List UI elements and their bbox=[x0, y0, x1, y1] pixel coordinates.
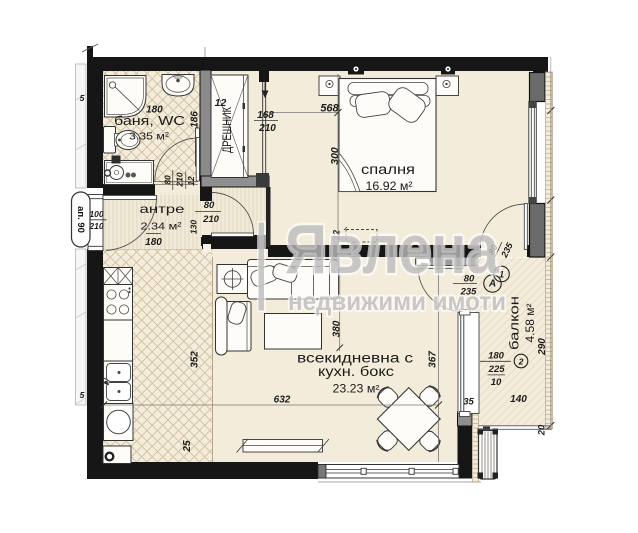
svg-text:2: 2 bbox=[518, 357, 524, 367]
svg-text:1: 1 bbox=[499, 270, 504, 280]
svg-text:20: 20 bbox=[537, 424, 548, 436]
svg-text:балкон: балкон bbox=[507, 296, 522, 350]
svg-text:Явлена: Явлена bbox=[285, 210, 500, 288]
svg-text:367: 367 bbox=[427, 351, 438, 368]
svg-text:ап. 90: ап. 90 bbox=[75, 206, 86, 233]
svg-text:ДРЕШНИК: ДРЕШНИК bbox=[222, 107, 234, 153]
svg-text:186: 186 bbox=[190, 111, 201, 128]
svg-text:спалня: спалня bbox=[361, 161, 415, 177]
svg-text:антре: антре bbox=[140, 202, 185, 216]
svg-text:80: 80 bbox=[163, 175, 173, 185]
svg-text:210: 210 bbox=[202, 214, 220, 225]
svg-text:168: 168 bbox=[257, 110, 274, 121]
svg-text:5: 5 bbox=[80, 390, 85, 400]
svg-text:10: 10 bbox=[491, 377, 502, 388]
svg-text:180: 180 bbox=[488, 351, 505, 362]
svg-text:380: 380 bbox=[332, 320, 343, 337]
svg-text:100: 100 bbox=[89, 209, 103, 219]
svg-text:225: 225 bbox=[488, 364, 506, 375]
svg-text:290: 290 bbox=[537, 338, 548, 356]
svg-text:недвижими имоти: недвижими имоти bbox=[288, 286, 506, 316]
svg-text:568: 568 bbox=[320, 103, 339, 115]
svg-text:210: 210 bbox=[175, 172, 185, 187]
svg-text:130: 130 bbox=[189, 220, 199, 234]
svg-text:16.92 м²: 16.92 м² bbox=[366, 179, 413, 193]
svg-text:35: 35 bbox=[463, 397, 474, 408]
svg-text:5: 5 bbox=[80, 93, 85, 103]
svg-text:180: 180 bbox=[146, 105, 163, 116]
svg-text:140: 140 bbox=[510, 394, 527, 405]
svg-text:25: 25 bbox=[182, 440, 193, 453]
svg-text:352: 352 bbox=[190, 351, 201, 368]
svg-text:12: 12 bbox=[186, 176, 196, 186]
svg-text:210: 210 bbox=[88, 221, 103, 231]
svg-text:80: 80 bbox=[204, 200, 215, 211]
svg-text:210: 210 bbox=[258, 123, 276, 134]
svg-text:2.34 м²: 2.34 м² bbox=[141, 222, 183, 233]
svg-text:баня, WC: баня, WC bbox=[114, 114, 185, 128]
svg-text:3.35 м²: 3.35 м² bbox=[129, 131, 170, 143]
svg-text:кухн. бокс: кухн. бокс bbox=[318, 364, 394, 379]
svg-text:4.58 м²: 4.58 м² bbox=[525, 303, 537, 342]
svg-text:632: 632 bbox=[274, 395, 291, 406]
svg-text:23.23 м²: 23.23 м² bbox=[333, 384, 380, 396]
svg-text:180: 180 bbox=[145, 237, 162, 248]
svg-text:300: 300 bbox=[329, 147, 341, 165]
